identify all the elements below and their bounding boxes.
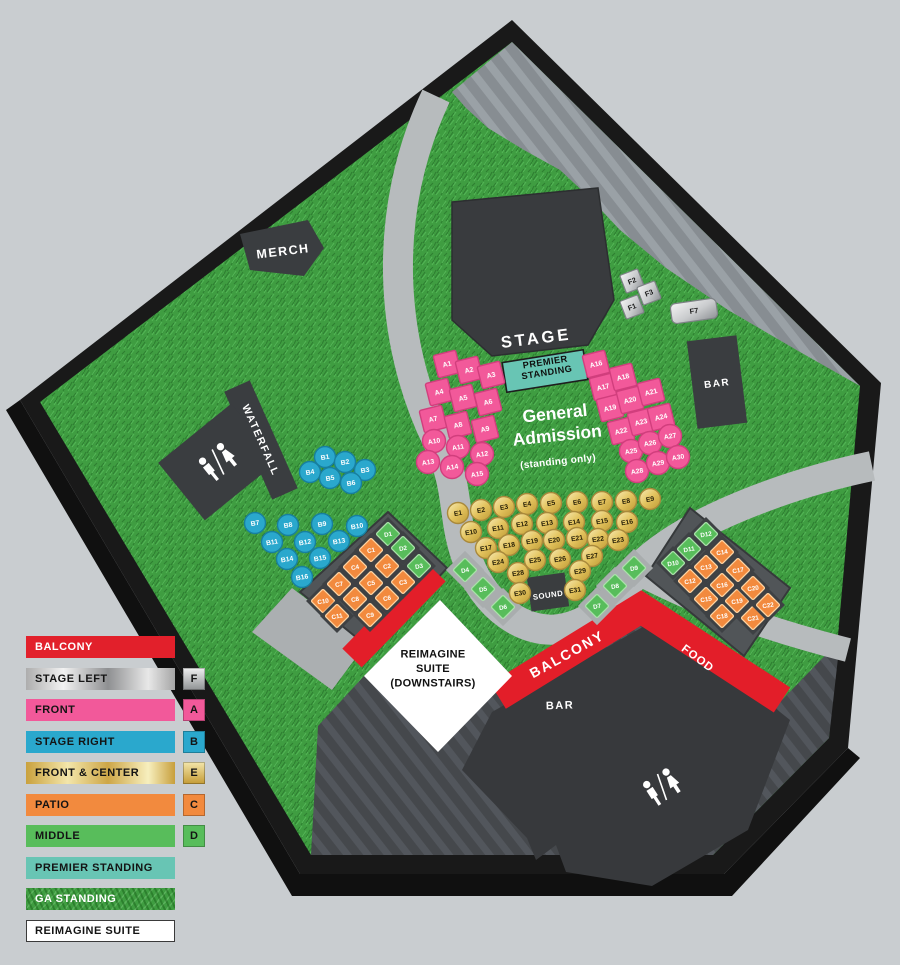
legend-row-front: FRONTA [26, 699, 256, 721]
seat-A4[interactable]: A4 [425, 378, 453, 406]
seat-A9[interactable]: A9 [471, 415, 499, 443]
seat-E23[interactable]: E23 [608, 530, 629, 551]
seat-E7[interactable]: E7 [592, 492, 613, 513]
seat-E6[interactable]: E6 [567, 492, 588, 513]
legend-label: PATIO [35, 799, 69, 811]
venue-map-page: A1A2A3A4A5A6A7A8A9A10A11A12A13A14A15A16A… [0, 0, 900, 965]
svg-text:SUITE: SUITE [416, 663, 450, 675]
seat-E5[interactable]: E5 [541, 493, 562, 514]
legend-letter-chip-B: B [183, 731, 205, 753]
svg-text:(DOWNSTAIRS): (DOWNSTAIRS) [390, 677, 475, 689]
legend-letter-chip-D: D [183, 825, 205, 847]
seat-A27[interactable]: A27 [659, 425, 682, 448]
seat-A14[interactable]: A14 [441, 456, 464, 479]
seat-A28[interactable]: A28 [626, 460, 649, 483]
legend-label: PREMIER STANDING [35, 862, 153, 874]
seat-A12[interactable]: A12 [471, 443, 494, 466]
seat-E24[interactable]: E24 [488, 552, 509, 573]
seat-B16[interactable]: B16 [292, 567, 313, 588]
seat-label: E9 [645, 496, 655, 504]
seat-B11[interactable]: B11 [262, 532, 283, 553]
legend-letter-chip-F: F [183, 668, 205, 690]
seat-B2[interactable]: B2 [335, 452, 356, 473]
seat-label: E1 [453, 510, 463, 518]
seat-label: E2 [476, 507, 486, 515]
legend-label: STAGE LEFT [35, 673, 108, 685]
seat-E10[interactable]: E10 [461, 522, 482, 543]
seat-A10[interactable]: A10 [423, 430, 446, 453]
legend-label: STAGE RIGHT [35, 736, 115, 748]
legend-letter-chip-A: A [183, 699, 205, 721]
legend-row-premier-standing: PREMIER STANDING [26, 857, 256, 879]
legend-letter-chip-C: C [183, 794, 205, 816]
label-bar-lower: BAR [546, 699, 575, 712]
seat-E20[interactable]: E20 [544, 530, 565, 551]
seat-E19[interactable]: E19 [522, 531, 543, 552]
legend-row-reimagine-suite: REIMAGINE SUITE [26, 920, 256, 942]
svg-text:BAR: BAR [546, 699, 575, 712]
seat-label: E8 [621, 498, 631, 506]
seat-B14[interactable]: B14 [277, 549, 298, 570]
seat-E29[interactable]: E29 [570, 561, 591, 582]
seat-E21[interactable]: E21 [567, 528, 588, 549]
seat-B13[interactable]: B13 [329, 531, 350, 552]
seat-E31[interactable]: E31 [565, 580, 586, 601]
legend-row-stage-right: STAGE RIGHTB [26, 731, 256, 753]
seat-E4[interactable]: E4 [517, 494, 538, 515]
seat-A13[interactable]: A13 [417, 451, 440, 474]
seat-E30[interactable]: E30 [510, 583, 531, 604]
seat-B9[interactable]: B9 [312, 514, 333, 535]
seat-B6[interactable]: B6 [341, 473, 362, 494]
legend-row-middle: MIDDLED [26, 825, 256, 847]
seat-E3[interactable]: E3 [494, 497, 515, 518]
seat-E26[interactable]: E26 [550, 549, 571, 570]
seat-B10[interactable]: B10 [347, 516, 368, 537]
legend-row-patio: PATIOC [26, 794, 256, 816]
seat-A5[interactable]: A5 [449, 384, 477, 412]
legend-row-ga-standing: GA STANDING [26, 888, 256, 910]
seat-A6[interactable]: A6 [474, 388, 502, 416]
seat-A30[interactable]: A30 [667, 446, 690, 469]
legend-row-front-center: FRONT & CENTERE [26, 762, 256, 784]
seat-B7[interactable]: B7 [245, 513, 266, 534]
seat-A15[interactable]: A15 [466, 463, 489, 486]
seat-E8[interactable]: E8 [616, 491, 637, 512]
legend-label: FRONT & CENTER [35, 767, 139, 779]
seat-label: E7 [597, 499, 607, 507]
seat-A8[interactable]: A8 [444, 411, 472, 439]
seat-label: F7 [689, 306, 699, 316]
seat-B5[interactable]: B5 [320, 468, 341, 489]
legend-label: REIMAGINE SUITE [35, 925, 140, 937]
seat-B8[interactable]: B8 [278, 515, 299, 536]
seat-B4[interactable]: B4 [300, 462, 321, 483]
legend-row-balcony: BALCONY [26, 636, 256, 658]
seat-E9[interactable]: E9 [640, 489, 661, 510]
seat-label: E3 [499, 504, 509, 512]
seat-E2[interactable]: E2 [471, 500, 492, 521]
legend-label: FRONT [35, 704, 75, 716]
seat-E28[interactable]: E28 [508, 563, 529, 584]
seat-A3[interactable]: A3 [477, 361, 505, 389]
legend-label: MIDDLE [35, 830, 80, 842]
legend-row-stage-left: STAGE LEFTF [26, 668, 256, 690]
legend-label: BALCONY [35, 641, 93, 653]
legend: BALCONYSTAGE LEFTFFRONTASTAGE RIGHTBFRON… [26, 636, 256, 951]
seat-E1[interactable]: E1 [448, 503, 469, 524]
legend-letter-chip-E: E [183, 762, 205, 784]
seat-A21[interactable]: A21 [637, 378, 665, 406]
seat-A7[interactable]: A7 [419, 405, 447, 433]
svg-text:REIMAGINE: REIMAGINE [400, 648, 465, 660]
legend-label: GA STANDING [35, 893, 116, 905]
seat-B15[interactable]: B15 [310, 548, 331, 569]
seat-label: E6 [572, 499, 582, 507]
seat-label: E4 [522, 501, 532, 509]
seat-B12[interactable]: B12 [295, 532, 316, 553]
seat-label: E5 [546, 500, 556, 508]
